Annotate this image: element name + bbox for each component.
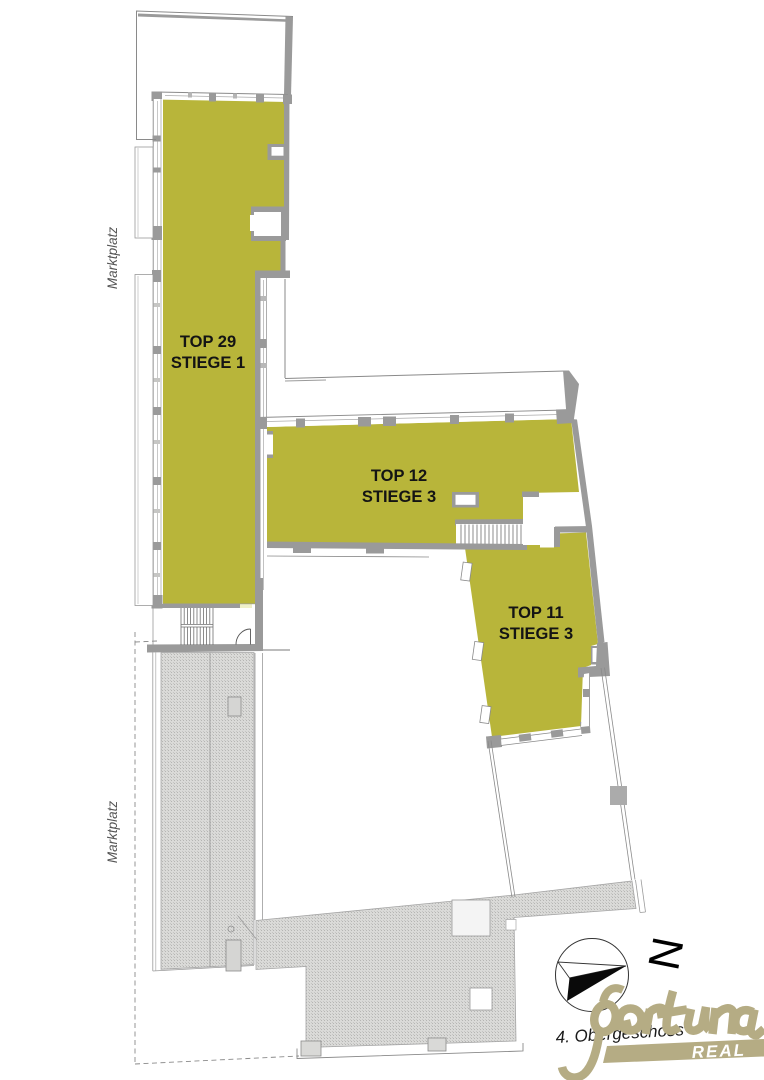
svg-text:STIEGE 1: STIEGE 1 (171, 354, 245, 372)
svg-text:TOP 11: TOP 11 (508, 604, 563, 622)
svg-text:TOP 12: TOP 12 (371, 467, 427, 485)
svg-text:Marktplatz: Marktplatz (105, 801, 120, 864)
svg-text:STIEGE 3: STIEGE 3 (499, 625, 573, 643)
svg-text:STIEGE 3: STIEGE 3 (362, 488, 436, 506)
svg-text:Marktplatz: Marktplatz (105, 227, 120, 290)
svg-text:TOP 29: TOP 29 (180, 333, 236, 351)
svg-text:REAL: REAL (691, 1041, 746, 1062)
